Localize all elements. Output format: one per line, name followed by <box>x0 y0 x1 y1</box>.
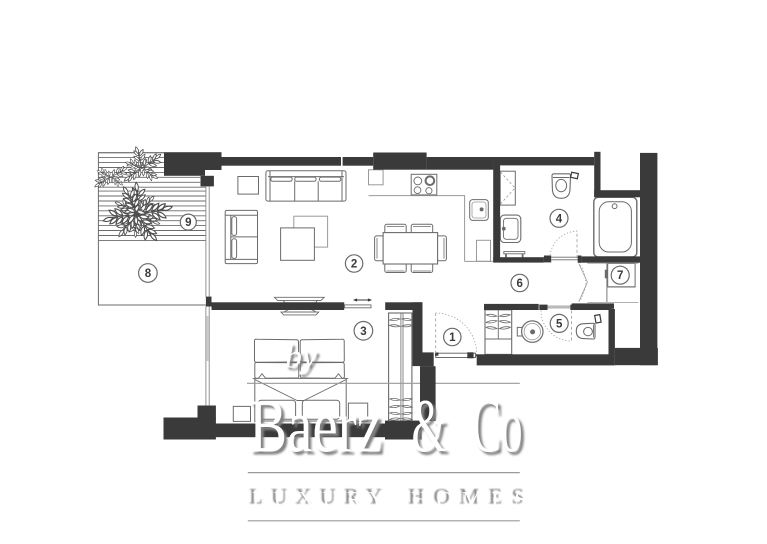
svg-text:5: 5 <box>556 318 563 330</box>
svg-text:8: 8 <box>145 268 152 280</box>
svg-text:3: 3 <box>360 326 366 338</box>
svg-text:7: 7 <box>617 270 623 282</box>
svg-text:by: by <box>285 339 318 376</box>
svg-text:Co: Co <box>472 385 523 469</box>
svg-text:2: 2 <box>351 259 357 271</box>
svg-text:&: & <box>412 385 447 469</box>
svg-text:6: 6 <box>516 278 522 290</box>
svg-text:Baerz: Baerz <box>249 385 382 469</box>
svg-text:1: 1 <box>449 332 456 344</box>
svg-text:4: 4 <box>556 213 563 225</box>
svg-text:9: 9 <box>185 217 191 229</box>
